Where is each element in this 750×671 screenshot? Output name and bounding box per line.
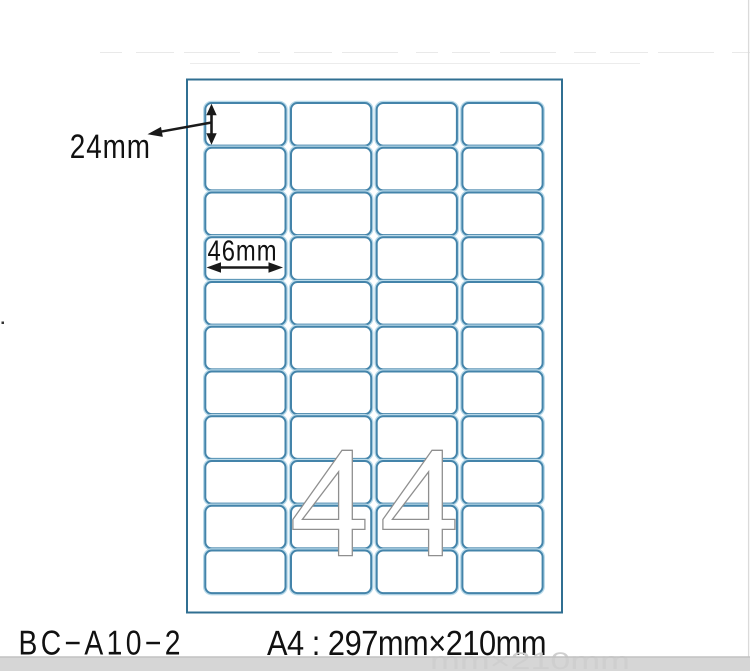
svg-text:24mm: 24mm bbox=[70, 128, 151, 166]
svg-text:mm×210mm: mm×210mm bbox=[430, 648, 630, 671]
svg-text:46mm: 46mm bbox=[208, 235, 278, 267]
